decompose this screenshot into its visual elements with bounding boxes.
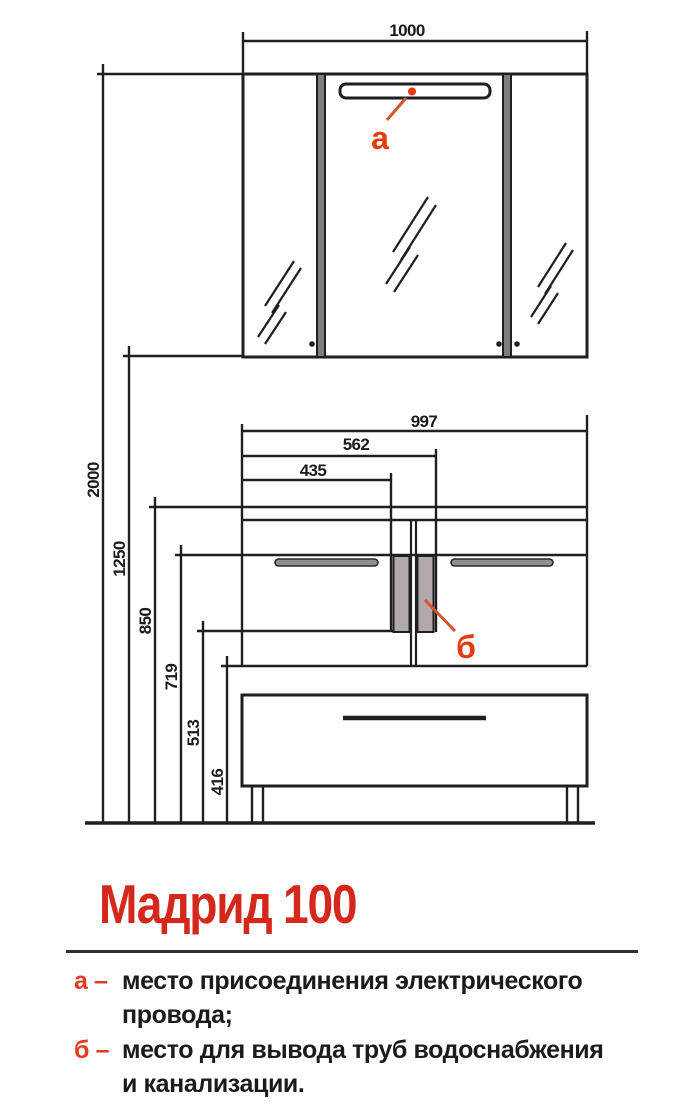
callout-a-dot <box>408 88 416 96</box>
dim-850-label: 850 <box>136 608 155 635</box>
dim-513-label: 513 <box>184 720 203 747</box>
dim-1250-label: 1250 <box>110 541 129 577</box>
legend-a-line1: место присоединения электрического <box>122 967 582 996</box>
door-knob-left <box>309 341 315 347</box>
callout-b-label: б <box>456 629 476 665</box>
mirror-divider-left <box>317 74 325 357</box>
dim-997-label: 997 <box>411 412 438 431</box>
mirror-cabinet <box>243 74 587 357</box>
plumbing-panel-right <box>418 556 434 632</box>
mirror-divider-right <box>503 74 511 357</box>
product-title: Мадрид 100 <box>99 872 356 936</box>
legend-divider <box>66 950 638 953</box>
technical-drawing: 2000 1250 850 719 513 416 1000 <box>0 0 700 848</box>
vanity-handle-right <box>451 559 553 566</box>
dim-1000-label: 1000 <box>389 21 425 40</box>
legend-key-b: б – <box>74 1036 109 1065</box>
legend-b-line2: и канализации. <box>122 1070 304 1099</box>
legend-b-line1: место для вывода труб водоснабжения <box>122 1036 603 1065</box>
dim-719-label: 719 <box>162 664 181 691</box>
drawer-unit <box>242 695 587 822</box>
door-knob-right <box>514 341 520 347</box>
dim-562-label: 562 <box>343 435 370 454</box>
vanity-handle-left <box>275 559 378 566</box>
door-knob-center <box>496 341 502 347</box>
legend-key-a: а – <box>74 967 108 996</box>
callout-a-label: а <box>371 120 389 156</box>
vanity-cabinet <box>243 520 587 665</box>
legend-a-line2: провода; <box>122 1001 233 1030</box>
drawer-body <box>242 695 587 786</box>
dim-2000-label: 2000 <box>84 462 103 498</box>
plumbing-panel-left <box>394 556 410 632</box>
page: 2000 1250 850 719 513 416 1000 <box>0 0 700 1120</box>
drawer-legs <box>252 786 578 822</box>
vanity-dimension-lines <box>241 415 587 666</box>
dim-416-label: 416 <box>208 769 227 796</box>
dim-435-label: 435 <box>300 461 327 480</box>
